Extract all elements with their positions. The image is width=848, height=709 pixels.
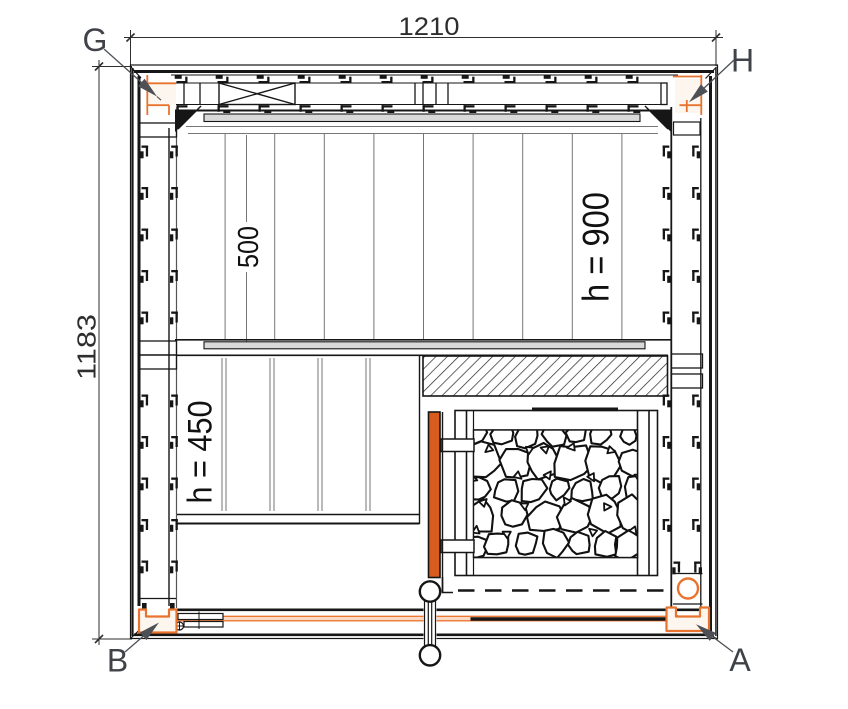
svg-text:A: A [729, 642, 751, 678]
svg-text:500: 500 [233, 226, 265, 268]
svg-text:1183: 1183 [72, 314, 102, 380]
svg-text:G: G [83, 22, 108, 58]
svg-text:1210: 1210 [399, 13, 460, 41]
svg-text:h = 450: h = 450 [182, 401, 220, 504]
svg-text:h = 900: h = 900 [576, 192, 617, 302]
svg-text:B: B [107, 643, 128, 679]
